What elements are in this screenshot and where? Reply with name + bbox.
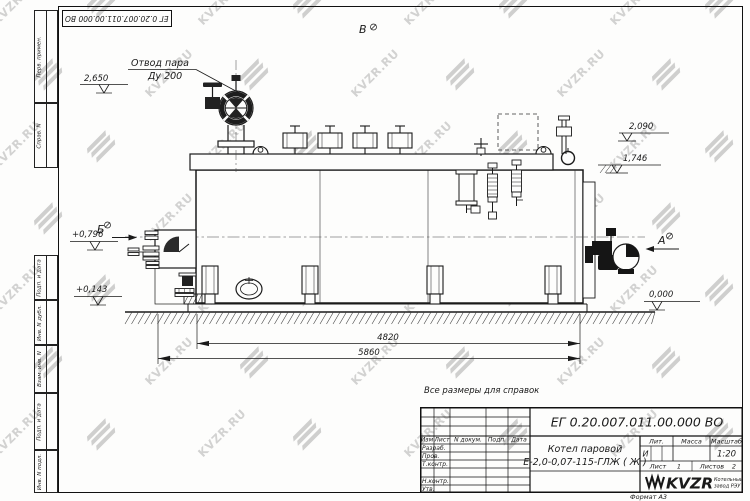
callout-text: Отвод пара: [131, 58, 189, 69]
view-label-v: В: [359, 23, 367, 36]
sheet-label: Лист: [649, 463, 667, 471]
col-podp: Подп.: [488, 437, 506, 444]
blueprint-page: KVZR.RUKVZR.RUKVZR.RUKVZR.RUKVZR.RUKVZR.…: [0, 0, 750, 500]
lit-label: Лит.: [648, 438, 664, 446]
col-izm: Изм: [421, 437, 434, 444]
level-right-upper: 2,090: [629, 122, 653, 132]
scale-label: Масштаб: [711, 438, 742, 446]
level-ground: 0,000: [649, 290, 673, 300]
kvzr-spring-icon: [646, 477, 664, 487]
dim-overall: 5860: [358, 348, 380, 358]
col-list: Лист: [433, 437, 450, 444]
mass-label: Масса: [681, 438, 702, 446]
base-skid: [188, 304, 587, 312]
sheets-label: Листов: [699, 463, 724, 471]
level-right-lower: 1,746: [623, 154, 648, 164]
product-code: Е-2,0-0,07-115-ГЛЖ ( Ж ): [523, 457, 646, 468]
level-left-lower: +0,143: [76, 285, 107, 295]
level-valve-top: 2,650: [84, 74, 108, 84]
top-casing: [190, 154, 553, 170]
company-tagline: завод РЭУ: [714, 484, 741, 490]
scale-value: 1:20: [717, 450, 736, 460]
row-utv: Утв.: [422, 486, 435, 493]
row-prov: Пров.: [422, 453, 440, 460]
top-left-doc-number-stamp: ЕГ 0.20.007.011.00.000 ВО: [62, 10, 172, 27]
company-tagline: Котельный: [714, 477, 743, 483]
row-razrab: Разраб.: [422, 445, 446, 452]
safety-valves: [283, 126, 412, 154]
level-left-upper: +0,796: [72, 230, 104, 240]
title-block: ЕГ 0.20.007.011.00.000 ВО Котел паровой …: [420, 407, 743, 493]
kvzr-logo-text: KVZR: [666, 475, 713, 493]
product-name: Котел паровой: [548, 444, 623, 455]
sheets-value: 2: [732, 463, 736, 471]
view-label-a: А: [657, 234, 666, 247]
dim-inner: 4820: [377, 333, 399, 343]
valve-handwheel-icon: [203, 83, 222, 88]
steam-outlet-callout: Отвод пара Ду 200: [128, 58, 245, 96]
callout-text: Ду 200: [147, 71, 182, 82]
title-doc-number: ЕГ 0.20.007.011.00.000 ВО: [551, 415, 724, 430]
sheet-value: 1: [677, 463, 681, 471]
row-nkontr: Н.контр.: [422, 478, 449, 485]
col-ndokum: N докум.: [454, 437, 482, 444]
lit-value: И: [643, 450, 649, 459]
row-tkontr: Т.контр.: [422, 461, 448, 468]
format-label: Формат А3: [630, 493, 667, 501]
ground-line: [125, 312, 655, 324]
reference-note: Все размеры для справок: [424, 386, 539, 396]
col-data: Дата: [510, 437, 527, 444]
front-box: [128, 230, 196, 304]
